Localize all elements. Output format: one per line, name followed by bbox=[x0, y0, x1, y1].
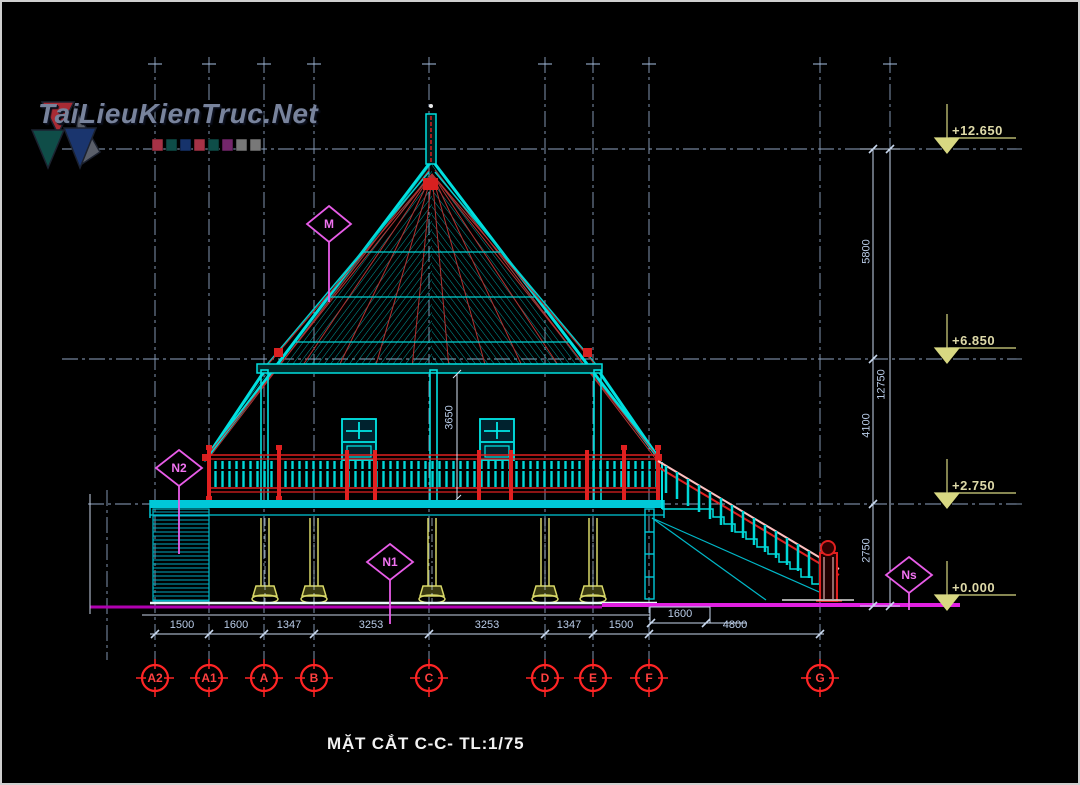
stair-balusters bbox=[666, 466, 820, 584]
axis-label-e: E bbox=[578, 672, 608, 684]
label-ns: Ns bbox=[894, 569, 924, 581]
elevation-marker-symbols bbox=[935, 104, 1016, 610]
hdim-1347-b: 1347 bbox=[544, 620, 594, 631]
vdim-4100: 4100 bbox=[862, 406, 873, 446]
balustrade bbox=[206, 445, 661, 501]
elevation-label-12650: +12.650 bbox=[952, 124, 1003, 137]
label-m: M bbox=[314, 218, 344, 230]
staircase bbox=[652, 461, 842, 601]
roof-finial bbox=[426, 104, 436, 164]
axis-label-a: A bbox=[249, 672, 279, 684]
hdim-1347-a: 1347 bbox=[264, 620, 314, 631]
hdim-4800: 4800 bbox=[710, 620, 760, 631]
vdim-2750: 2750 bbox=[862, 531, 873, 571]
floor-deck bbox=[150, 500, 664, 518]
stair-support-post bbox=[645, 509, 654, 599]
axis-label-f: F bbox=[634, 672, 664, 684]
masonry-block bbox=[153, 509, 209, 601]
hdim-stair-1600: 1600 bbox=[654, 609, 706, 620]
hdim-1500-a: 1500 bbox=[157, 620, 207, 631]
hdim-1600: 1600 bbox=[211, 620, 261, 631]
axis-bubbles bbox=[136, 659, 839, 697]
stilt-columns bbox=[252, 509, 654, 603]
hdim-3253-b: 3253 bbox=[462, 620, 512, 631]
axis-label-d: D bbox=[530, 672, 560, 684]
elevation-label-0000: +0.000 bbox=[952, 581, 995, 594]
axis-label-a1: A1 bbox=[194, 672, 224, 684]
label-n1: N1 bbox=[375, 556, 405, 568]
hdim-1500-b: 1500 bbox=[596, 620, 646, 631]
label-n2: N2 bbox=[164, 462, 194, 474]
hdim-3253-a: 3253 bbox=[346, 620, 396, 631]
cad-drawing-page: TaiLieuKienTruc.Net MẶT CẮT C-C- TL:1/75… bbox=[0, 0, 1080, 785]
roof-ridge-block bbox=[423, 178, 438, 190]
elevation-label-6850: +6.850 bbox=[952, 334, 995, 347]
axis-label-a2: A2 bbox=[140, 672, 170, 684]
elevation-label-2750: +2.750 bbox=[952, 479, 995, 492]
axis-label-c: C bbox=[414, 672, 444, 684]
vdim-12750: 12750 bbox=[877, 360, 888, 410]
vdim-3650: 3650 bbox=[445, 398, 456, 438]
axis-label-b: B bbox=[299, 672, 329, 684]
drawing-title: MẶT CẮT C-C- TL:1/75 bbox=[327, 735, 524, 752]
watermark-brand-text: TaiLieuKienTruc.Net bbox=[38, 100, 318, 128]
axis-label-g: G bbox=[805, 672, 835, 684]
door-right bbox=[480, 419, 514, 460]
vdim-5800: 5800 bbox=[862, 232, 873, 272]
